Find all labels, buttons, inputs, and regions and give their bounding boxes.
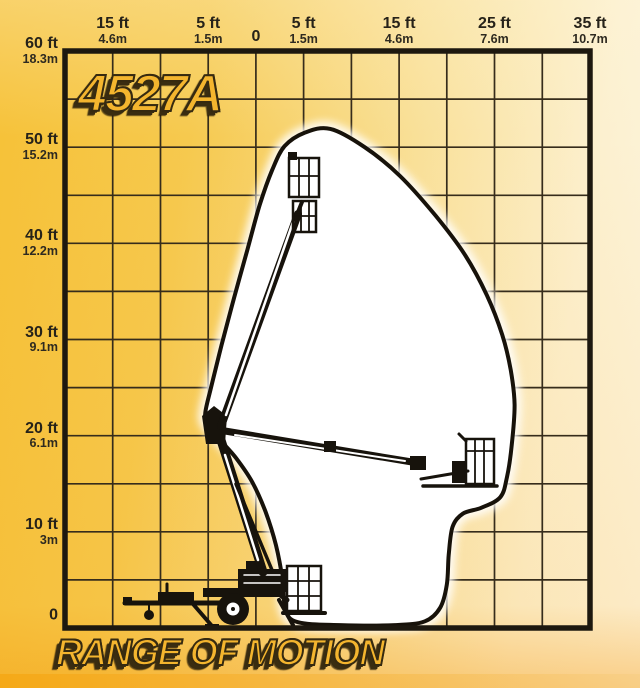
x-tick-m-label: 10.7m — [572, 33, 607, 46]
chart-caption: RANGE OF MOTION — [56, 632, 384, 674]
x-axis-tick: 0 — [251, 8, 260, 46]
y-tick-ft-label: 40 ft — [25, 228, 58, 245]
y-tick-m-label: 15.2m — [23, 149, 58, 162]
x-tick-m-label: 1.5m — [194, 33, 223, 46]
y-axis-tick: 30 ft9.1m — [0, 325, 58, 355]
y-tick-ft-label: 60 ft — [25, 36, 58, 53]
x-tick-m-label: 4.6m — [385, 33, 414, 46]
y-axis-tick: 60 ft18.3m — [0, 36, 58, 66]
trailer-wheel — [217, 593, 249, 625]
page-background: 15 ft4.6m5 ft1.5m05 ft1.5m15 ft4.6m25 ft… — [0, 0, 640, 688]
y-tick-m-label: 3m — [40, 534, 58, 547]
y-axis-tick: 20 ft6.1m — [0, 421, 58, 451]
x-axis-tick: 5 ft1.5m — [289, 8, 318, 46]
y-axis-tick: 50 ft15.2m — [0, 132, 58, 162]
y-tick-m-label: 12.2m — [23, 245, 58, 258]
y-axis-tick: 10 ft3m — [0, 517, 58, 547]
y-tick-m-label: 18.3m — [23, 53, 58, 66]
x-tick-ft-label: 15 ft — [96, 16, 129, 33]
x-tick-ft-label: 25 ft — [478, 16, 511, 33]
y-tick-ft-label: 10 ft — [25, 517, 58, 534]
x-tick-m-label: 7.6m — [480, 33, 509, 46]
y-tick-m-label: 9.1m — [30, 341, 59, 354]
x-axis-tick: 15 ft4.6m — [383, 8, 416, 46]
y-tick-ft-label: 30 ft — [25, 325, 58, 342]
x-tick-ft-label: 5 ft — [292, 16, 316, 33]
x-axis-tick: 5 ft1.5m — [194, 8, 223, 46]
y-tick-ft-label: 20 ft — [25, 421, 58, 438]
bottom-accent-strip — [0, 674, 640, 688]
y-axis-tick: 0 — [0, 608, 58, 625]
model-logo: 4527A — [78, 64, 221, 124]
x-tick-ft-label: 5 ft — [196, 16, 220, 33]
x-axis-tick: 25 ft7.6m — [478, 8, 511, 46]
x-tick-ft-label: 0 — [251, 29, 260, 46]
x-axis-tick: 35 ft10.7m — [572, 8, 607, 46]
y-tick-ft-label: 0 — [49, 608, 58, 625]
x-tick-m-label: 4.6m — [98, 33, 127, 46]
x-tick-ft-label: 15 ft — [383, 16, 416, 33]
x-tick-ft-label: 35 ft — [574, 16, 607, 33]
range-envelope — [205, 128, 515, 625]
x-axis-tick: 15 ft4.6m — [96, 8, 129, 46]
y-axis-tick: 40 ft12.2m — [0, 228, 58, 258]
y-tick-m-label: 6.1m — [30, 438, 59, 451]
y-tick-ft-label: 50 ft — [25, 132, 58, 149]
x-tick-m-label: 1.5m — [289, 33, 318, 46]
